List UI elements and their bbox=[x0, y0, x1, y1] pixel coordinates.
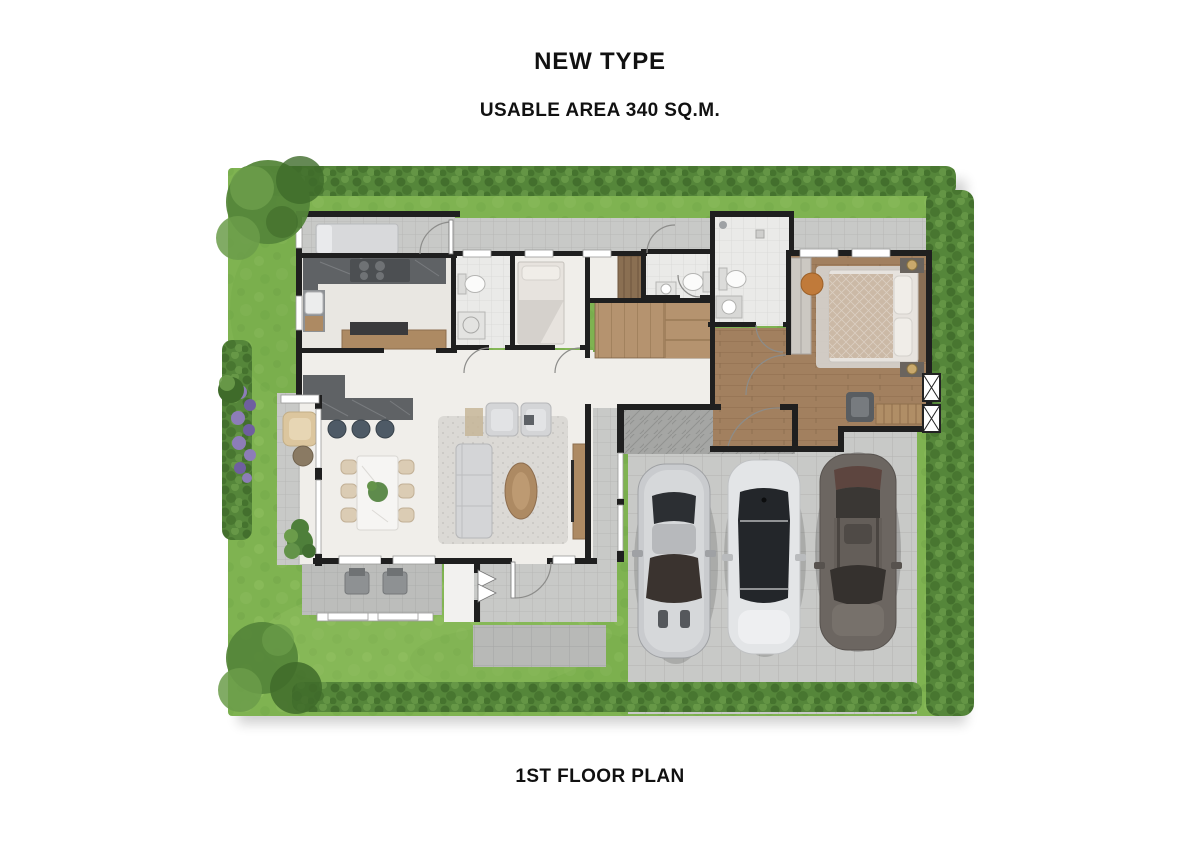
pillow bbox=[894, 276, 912, 314]
stair-landing bbox=[665, 300, 713, 358]
kitchen-counter-side bbox=[303, 256, 318, 290]
front-door-leaf bbox=[511, 562, 515, 598]
dining-chair bbox=[341, 508, 357, 522]
south-patio-shade bbox=[302, 560, 442, 615]
sofa bbox=[456, 444, 492, 538]
shower-floor bbox=[715, 215, 791, 256]
pillow bbox=[522, 266, 560, 280]
basin-bowl bbox=[661, 284, 671, 294]
door-leaf bbox=[449, 220, 453, 254]
potted-plant bbox=[284, 543, 300, 559]
kitchen-appliance bbox=[350, 322, 408, 335]
toilet-bowl bbox=[726, 271, 746, 288]
accent-mat bbox=[465, 408, 483, 436]
washer bbox=[458, 312, 485, 339]
floor-plan-page: NEW TYPE USABLE AREA 340 SQ.M. bbox=[0, 0, 1200, 849]
dining-chair bbox=[341, 460, 357, 474]
side-step bbox=[444, 563, 474, 622]
potted-plant bbox=[302, 544, 316, 558]
lamp bbox=[907, 260, 917, 270]
plan-caption: 1ST FLOOR PLAN bbox=[0, 766, 1200, 788]
pillow bbox=[894, 318, 912, 356]
duvet bbox=[829, 274, 893, 358]
patio-chair-back bbox=[387, 568, 403, 576]
car-dark-suv bbox=[814, 452, 902, 652]
toilet-tank bbox=[703, 272, 711, 292]
hedge-top bbox=[238, 166, 956, 196]
hedge-bottom bbox=[292, 682, 922, 712]
maid-pillow bbox=[317, 225, 332, 253]
hedge-right bbox=[926, 190, 974, 716]
stool-top bbox=[851, 397, 869, 417]
dining-chair bbox=[398, 508, 414, 522]
burner bbox=[376, 272, 384, 280]
vanity-basin bbox=[722, 300, 736, 314]
dining-chair bbox=[398, 460, 414, 474]
centerpiece-plant bbox=[367, 481, 377, 491]
car-silver-sports bbox=[632, 464, 718, 664]
burner bbox=[359, 261, 369, 271]
kitchen-island bbox=[317, 398, 413, 420]
bench bbox=[876, 404, 922, 424]
tv bbox=[571, 460, 574, 522]
car-white-sedan bbox=[722, 459, 806, 657]
bar-stool bbox=[352, 420, 370, 438]
burner bbox=[360, 272, 368, 280]
toilet-bowl bbox=[683, 274, 703, 291]
bar-stool bbox=[376, 420, 394, 438]
lamp bbox=[907, 364, 917, 374]
shower-head bbox=[719, 221, 727, 229]
kitchen-sink bbox=[305, 292, 323, 314]
headboard bbox=[918, 270, 927, 362]
entry-court bbox=[474, 560, 617, 622]
bar-stool bbox=[328, 420, 346, 438]
entry-corridor bbox=[593, 404, 619, 560]
dining-chair bbox=[398, 484, 414, 498]
lounge-cushion bbox=[289, 418, 311, 440]
foyer-floor bbox=[593, 352, 715, 408]
island-corner bbox=[303, 375, 345, 398]
dining-chair bbox=[341, 484, 357, 498]
toilet-bowl bbox=[465, 276, 485, 293]
floor-plan-graphic bbox=[0, 0, 1200, 849]
cars bbox=[632, 452, 902, 664]
side-tray bbox=[524, 415, 534, 425]
armchair-cushion bbox=[491, 409, 513, 431]
shower-drain bbox=[756, 230, 764, 238]
burner bbox=[375, 261, 385, 271]
patio-chair-back bbox=[349, 568, 365, 576]
concrete-pad-shade bbox=[473, 625, 606, 667]
coffee-table-grain bbox=[512, 472, 530, 510]
side-table bbox=[293, 446, 313, 466]
round-pouf bbox=[801, 273, 823, 295]
sink-cabinet bbox=[305, 316, 323, 331]
